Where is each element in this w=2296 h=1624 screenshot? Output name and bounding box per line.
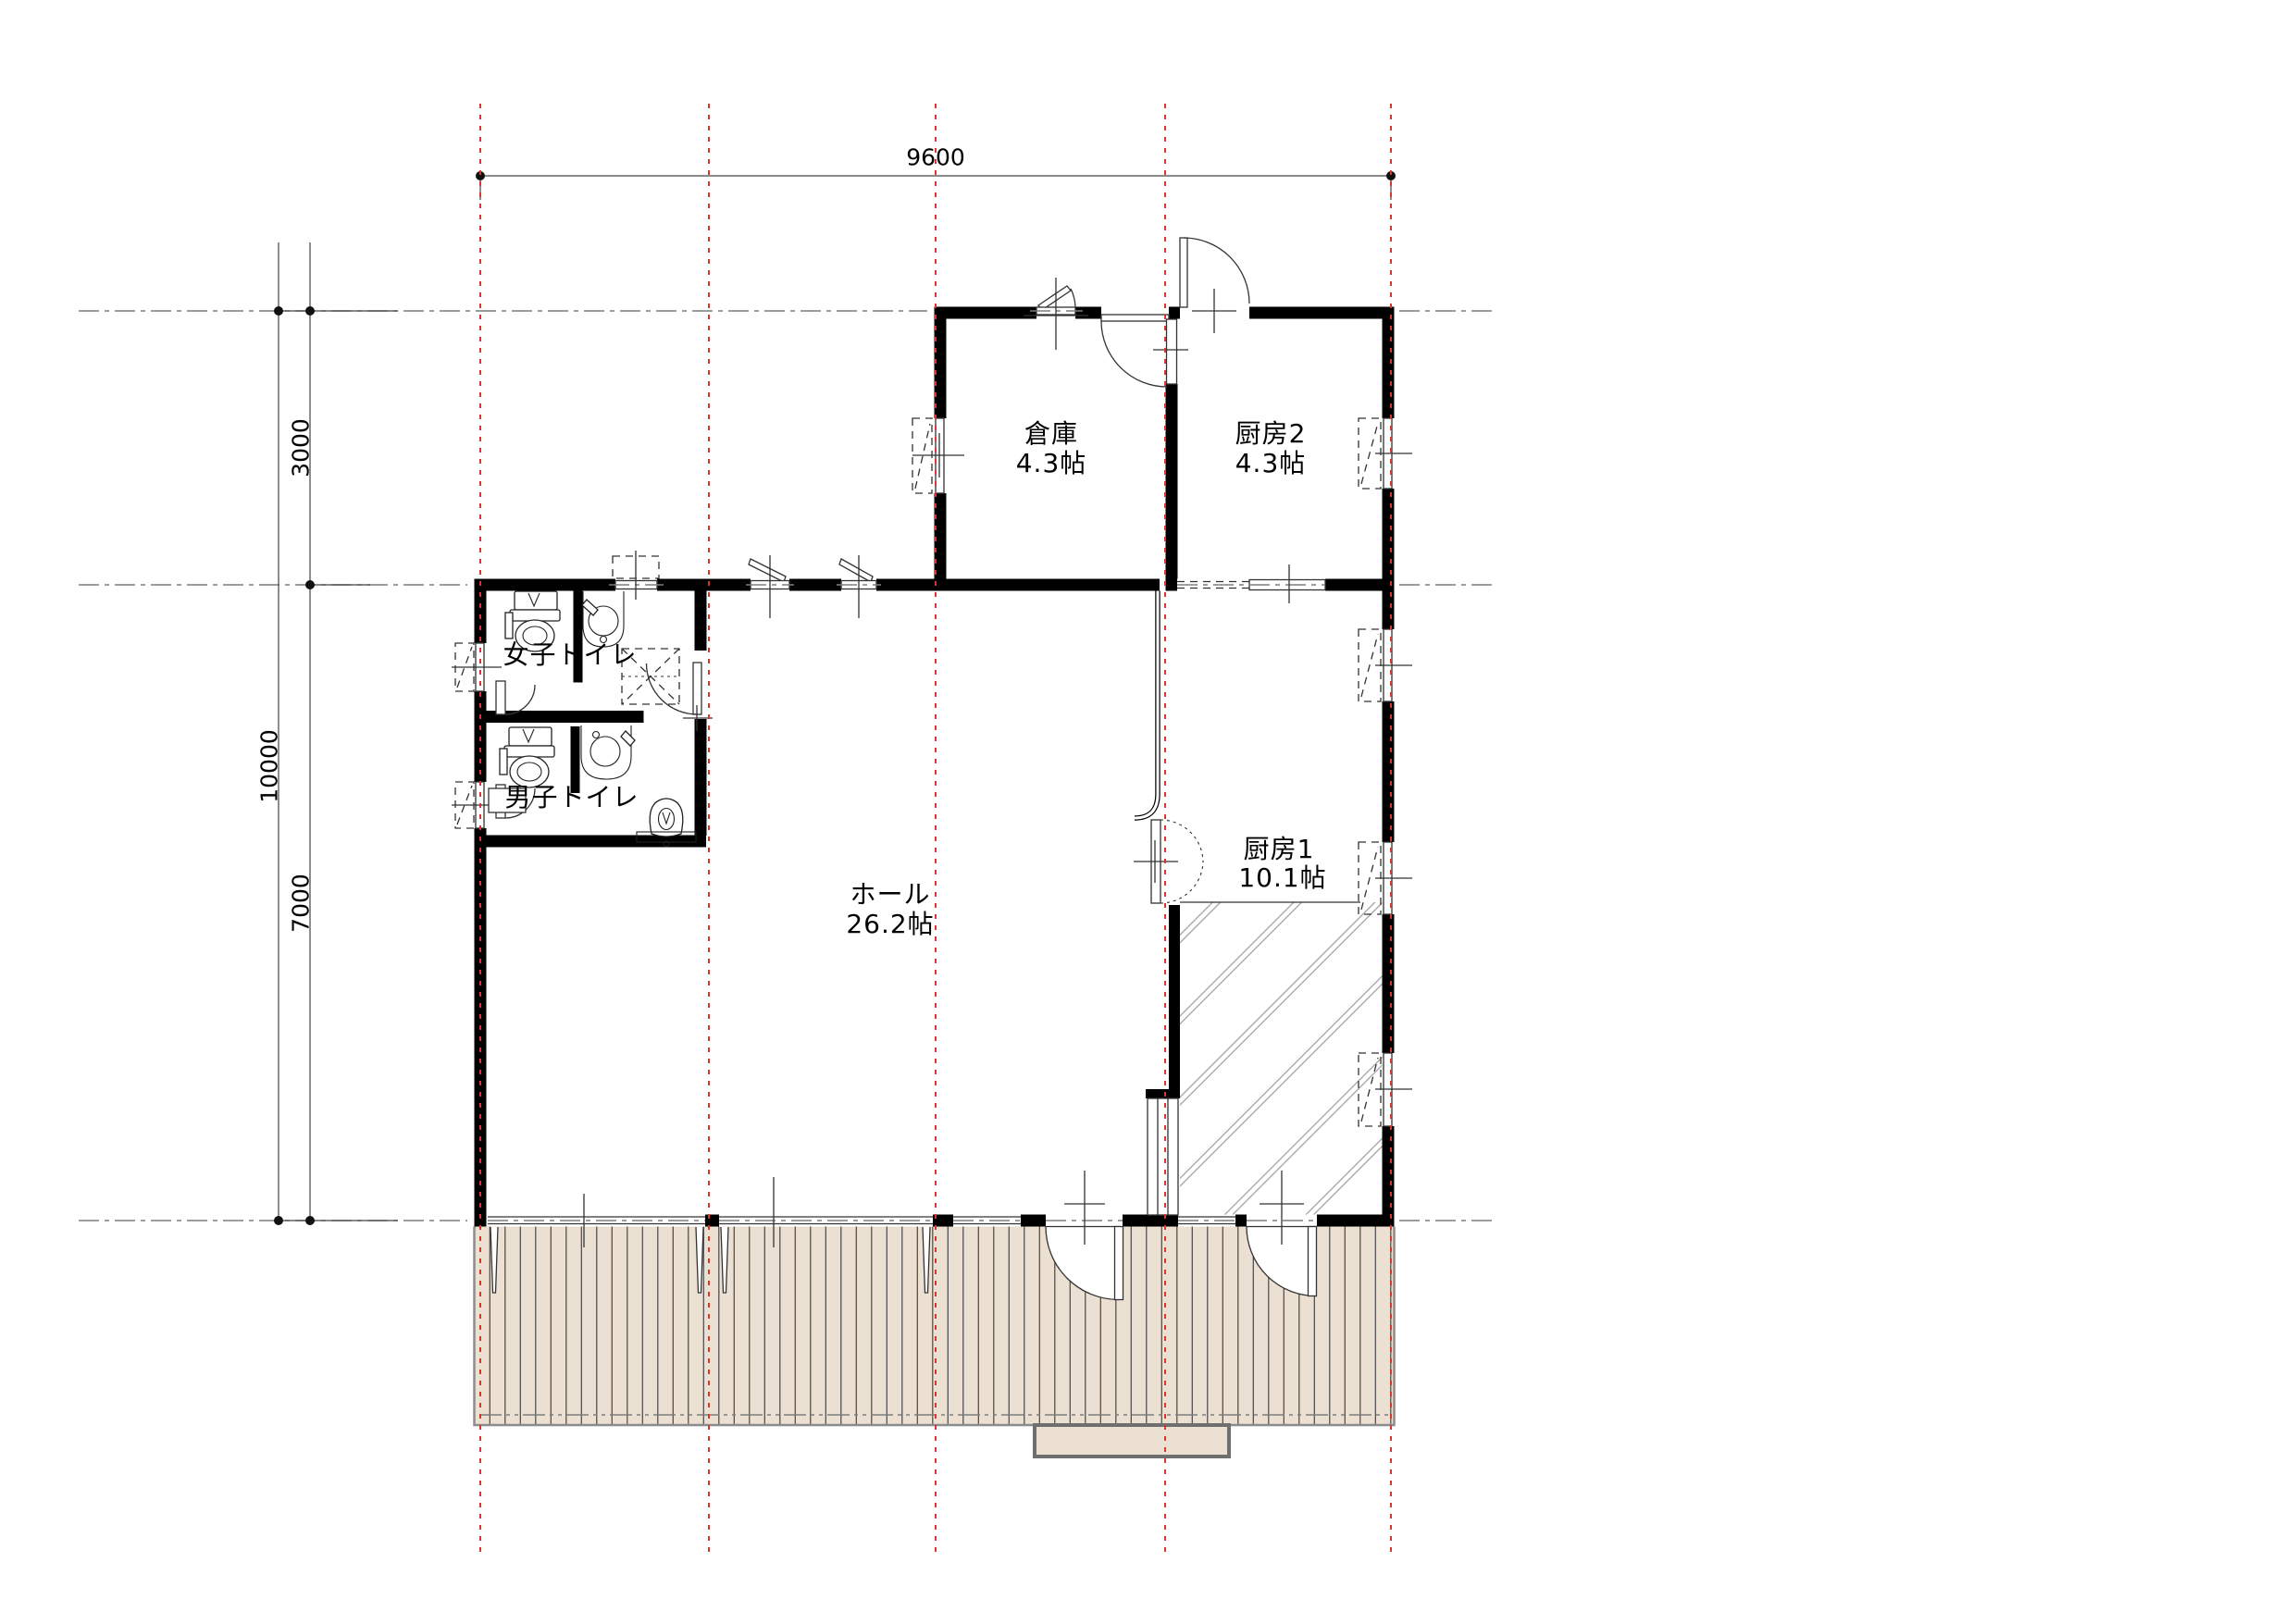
dimension-left-total: 10000	[258, 729, 281, 803]
room-label-mens-toilet: 男子トイレ	[504, 785, 639, 811]
dimension-top-width: 9600	[906, 146, 965, 169]
room-label-womens-toilet: 女子トイレ	[503, 642, 637, 668]
room-label-kitchen2: 厨房2	[1235, 421, 1307, 447]
kitchen1-partition	[1135, 591, 1158, 819]
hatch-area	[1180, 902, 1383, 1215]
room-area-hall: 26.2帖	[846, 911, 934, 937]
room-label-hall: ホール	[850, 882, 930, 908]
floor-plan-page: 9600 3000 10000 7000 倉庫 4.3帖 厨房2 4.3帖 厨房…	[0, 0, 2296, 1624]
room-area-kitchen1: 10.1帖	[1238, 865, 1326, 891]
deck-step	[1035, 1425, 1229, 1457]
room-area-kitchen2: 4.3帖	[1235, 451, 1307, 477]
dimension-left-upper: 3000	[290, 418, 313, 477]
dimension-left-lower: 7000	[290, 874, 313, 933]
floor-plan-drawing	[0, 0, 2296, 1624]
room-label-storage: 倉庫	[1024, 421, 1078, 447]
room-label-kitchen1: 厨房1	[1244, 837, 1315, 862]
room-area-storage: 4.3帖	[1016, 451, 1087, 477]
